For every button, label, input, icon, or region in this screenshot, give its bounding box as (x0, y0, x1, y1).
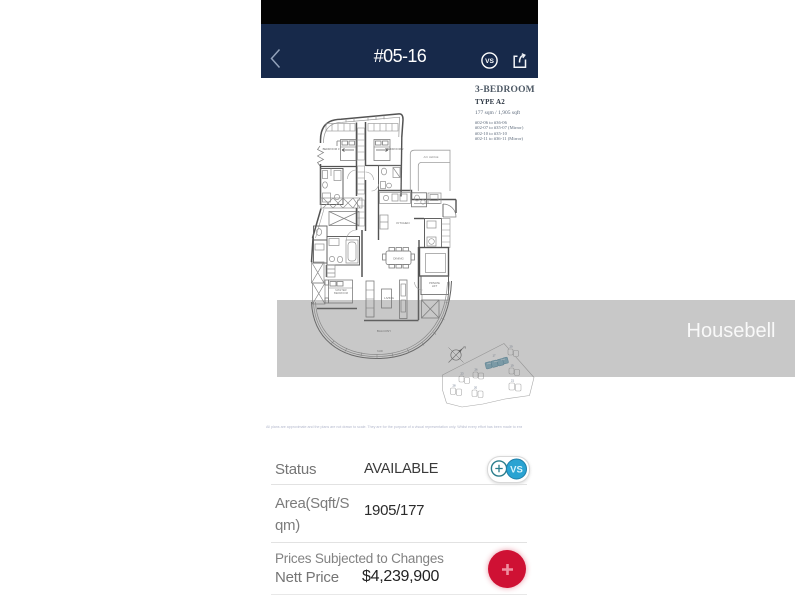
svg-text:BEDROOM 3: BEDROOM 3 (323, 147, 340, 151)
svg-text:VS: VS (510, 465, 523, 476)
svg-text:BEDROOM: BEDROOM (334, 291, 349, 295)
svg-text:20: 20 (474, 386, 478, 390)
svg-text:BEDROOM 2: BEDROOM 2 (387, 147, 404, 151)
svg-text:A/C LEDGE: A/C LEDGE (424, 155, 439, 159)
svg-text:21: 21 (511, 379, 515, 383)
svg-text:LIFT: LIFT (432, 284, 438, 288)
svg-text:28: 28 (452, 384, 456, 388)
svg-text:DINING: DINING (393, 257, 404, 261)
svg-text:KITCHEN: KITCHEN (396, 221, 409, 225)
